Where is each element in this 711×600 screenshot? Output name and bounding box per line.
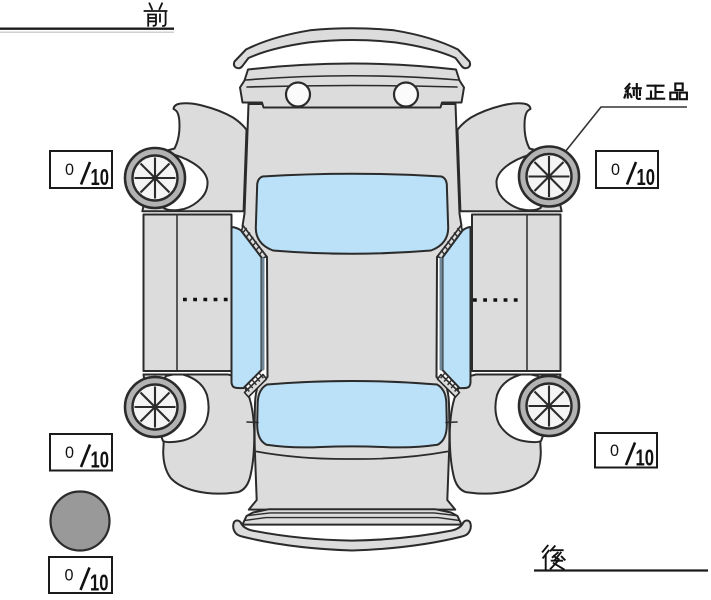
svg-text:10: 10 — [636, 445, 655, 471]
svg-text:0: 0 — [611, 160, 620, 179]
svg-text:0: 0 — [610, 441, 619, 460]
svg-text:10: 10 — [637, 164, 656, 190]
svg-text:10: 10 — [91, 164, 110, 190]
svg-text:10: 10 — [91, 447, 110, 473]
svg-text:0: 0 — [65, 566, 74, 585]
svg-text:0: 0 — [65, 443, 74, 462]
svg-text:10: 10 — [90, 570, 109, 596]
svg-text:0: 0 — [65, 160, 74, 179]
